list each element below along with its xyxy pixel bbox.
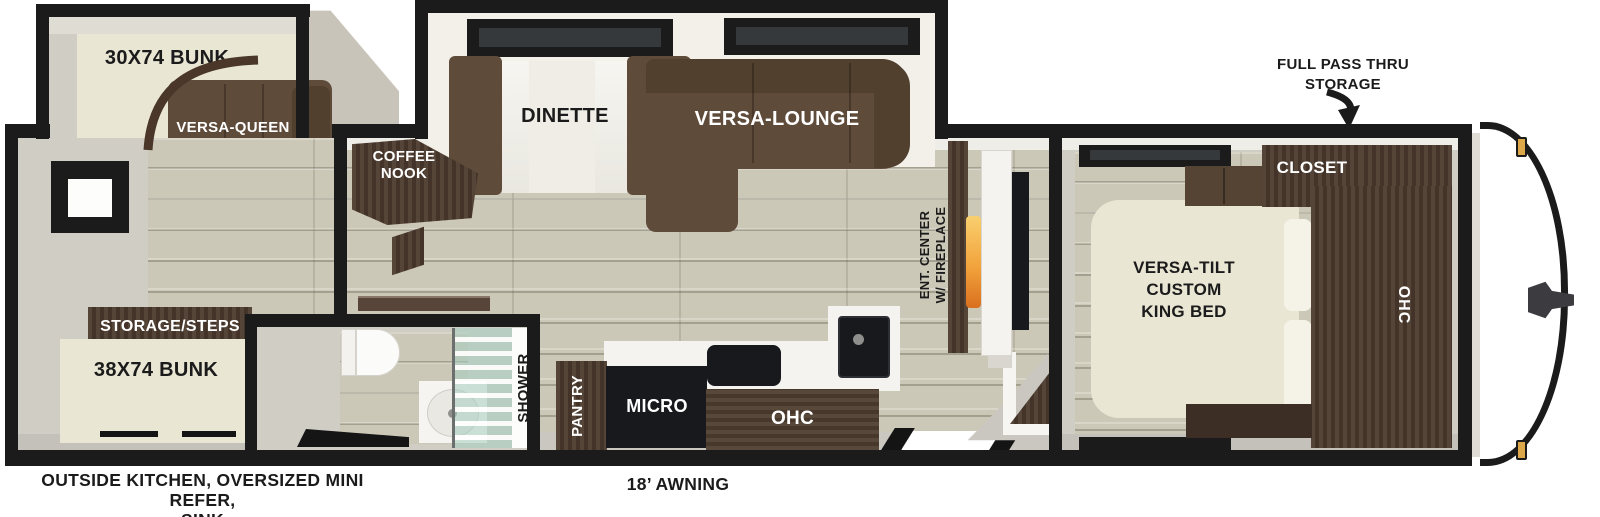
- wall-slideout-top: [415, 0, 948, 13]
- label-coffee-nook: COFFEE NOOK: [356, 148, 452, 183]
- label-38x74-bunk: 38X74 BUNK: [66, 358, 246, 382]
- wall-main-top-right: [941, 124, 1472, 138]
- ent-center-cabinet: [981, 150, 1012, 356]
- lounge-chaise: [646, 155, 738, 232]
- label-30x74-bunk: 30X74 BUNK: [82, 46, 252, 70]
- ent-center-base: [988, 356, 1012, 368]
- wall-bunkroom-left: [36, 4, 49, 139]
- bedroom-window-top-glass: [1090, 150, 1220, 160]
- wall-bath-left: [245, 314, 257, 454]
- lounge-back-band: [646, 59, 908, 93]
- bunk-38x74: [60, 339, 252, 443]
- shower-stall: [452, 328, 512, 448]
- fireplace-flame: [966, 216, 981, 308]
- wall-bath-right: [527, 314, 540, 454]
- wall-bunkroom-top: [36, 4, 310, 17]
- wall-main-bottom: [5, 450, 1472, 466]
- bedroom-nightstand: [1186, 404, 1312, 438]
- sink-faucet: [853, 334, 864, 345]
- tv-panel: [1012, 172, 1029, 330]
- wall-bath-top: [245, 314, 540, 327]
- lounge-arm: [874, 62, 910, 168]
- marker-light-top: [1516, 137, 1527, 157]
- bedroom-cabinet-divider: [1223, 168, 1225, 204]
- wall-rear-divider: [334, 130, 347, 322]
- kitchen-sink: [838, 316, 890, 378]
- label-storage-steps: STORAGE/STEPS: [92, 317, 248, 336]
- label-versa-queen: VERSA-QUEEN: [170, 119, 296, 137]
- label-ent-center: ENT. CENTER W/ FIREPLACE: [917, 185, 963, 325]
- bunk-rail-1: [100, 431, 158, 437]
- toilet-tank: [341, 329, 356, 376]
- wall-front: [1458, 124, 1472, 466]
- wardrobe-main: [1311, 186, 1452, 448]
- label-awning: 18’ AWNING: [603, 474, 753, 495]
- label-ohc-kitchen: OHC: [740, 408, 845, 431]
- label-pantry: PANTRY: [569, 356, 593, 456]
- bed-pillow-2: [1284, 320, 1312, 412]
- label-outside-features: OUTSIDE KITCHEN, OVERSIZED MINI REFER, S…: [10, 470, 395, 517]
- label-ohc-bedroom: OHC: [1389, 261, 1413, 349]
- shower-door-rod: [452, 328, 455, 448]
- label-micro: MICRO: [612, 396, 702, 418]
- cooktop: [707, 345, 781, 386]
- wall-main-left: [5, 124, 18, 466]
- label-closet: CLOSET: [1252, 158, 1372, 178]
- wall-slideout-right: [935, 0, 948, 139]
- bunk-room-top-band: [49, 17, 296, 34]
- wall-slideout-left: [415, 0, 428, 139]
- slideout-window-1-glass: [479, 28, 661, 47]
- wall-bunkroom-right: [296, 4, 309, 138]
- storage-arrow-icon: [1327, 92, 1351, 113]
- bed-pillow-1: [1284, 219, 1312, 311]
- label-king-bed: VERSA-TILT CUSTOM KING BED: [1104, 257, 1264, 323]
- label-dinette: DINETTE: [495, 104, 635, 128]
- marker-light-bottom: [1516, 440, 1527, 460]
- bunk-rail-2: [182, 431, 236, 437]
- label-versa-lounge: VERSA-LOUNGE: [688, 107, 866, 131]
- rear-window-glass: [68, 179, 112, 217]
- rv-floor-plan: 30X74 BUNK VERSA-QUEEN STORAGE/STEPS 38X…: [0, 0, 1600, 517]
- wall-bedroom-divider: [1049, 130, 1062, 454]
- slideout-window-2-glass: [736, 27, 908, 45]
- bunk-room-wall-band: [49, 17, 77, 138]
- label-full-pass-thru-storage: FULL PASS THRU STORAGE: [1258, 55, 1428, 94]
- side-counter: [358, 296, 490, 311]
- bedroom-door-threshold: [1003, 424, 1053, 435]
